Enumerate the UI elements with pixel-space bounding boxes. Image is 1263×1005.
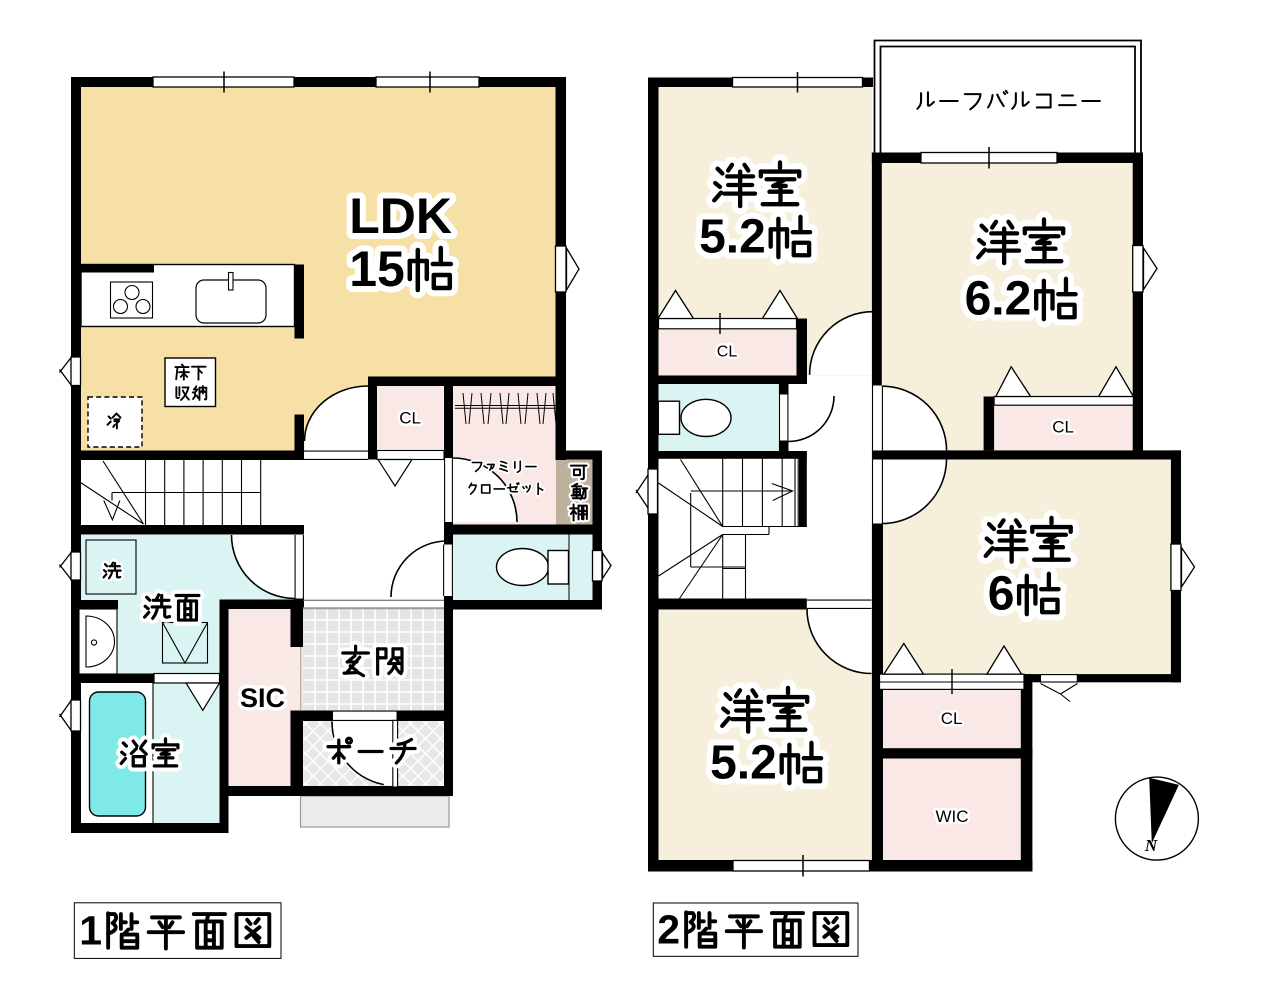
svg-text:6: 6 xyxy=(988,568,1015,621)
svg-text:CL: CL xyxy=(941,709,963,728)
svg-text:N: N xyxy=(1144,836,1158,855)
svg-text:5.2: 5.2 xyxy=(699,211,766,264)
svg-text:SIC: SIC xyxy=(240,683,285,713)
svg-text:5.2: 5.2 xyxy=(710,737,777,790)
svg-text:LDK: LDK xyxy=(349,188,452,244)
svg-text:WIC: WIC xyxy=(936,807,969,826)
svg-text:CL: CL xyxy=(399,409,421,428)
svg-text:CL: CL xyxy=(717,344,738,361)
svg-text:6.2: 6.2 xyxy=(965,273,1032,326)
svg-text:15: 15 xyxy=(349,241,405,297)
svg-text:CL: CL xyxy=(1052,418,1074,437)
svg-text:1: 1 xyxy=(79,908,102,954)
svg-text:2: 2 xyxy=(657,907,680,953)
